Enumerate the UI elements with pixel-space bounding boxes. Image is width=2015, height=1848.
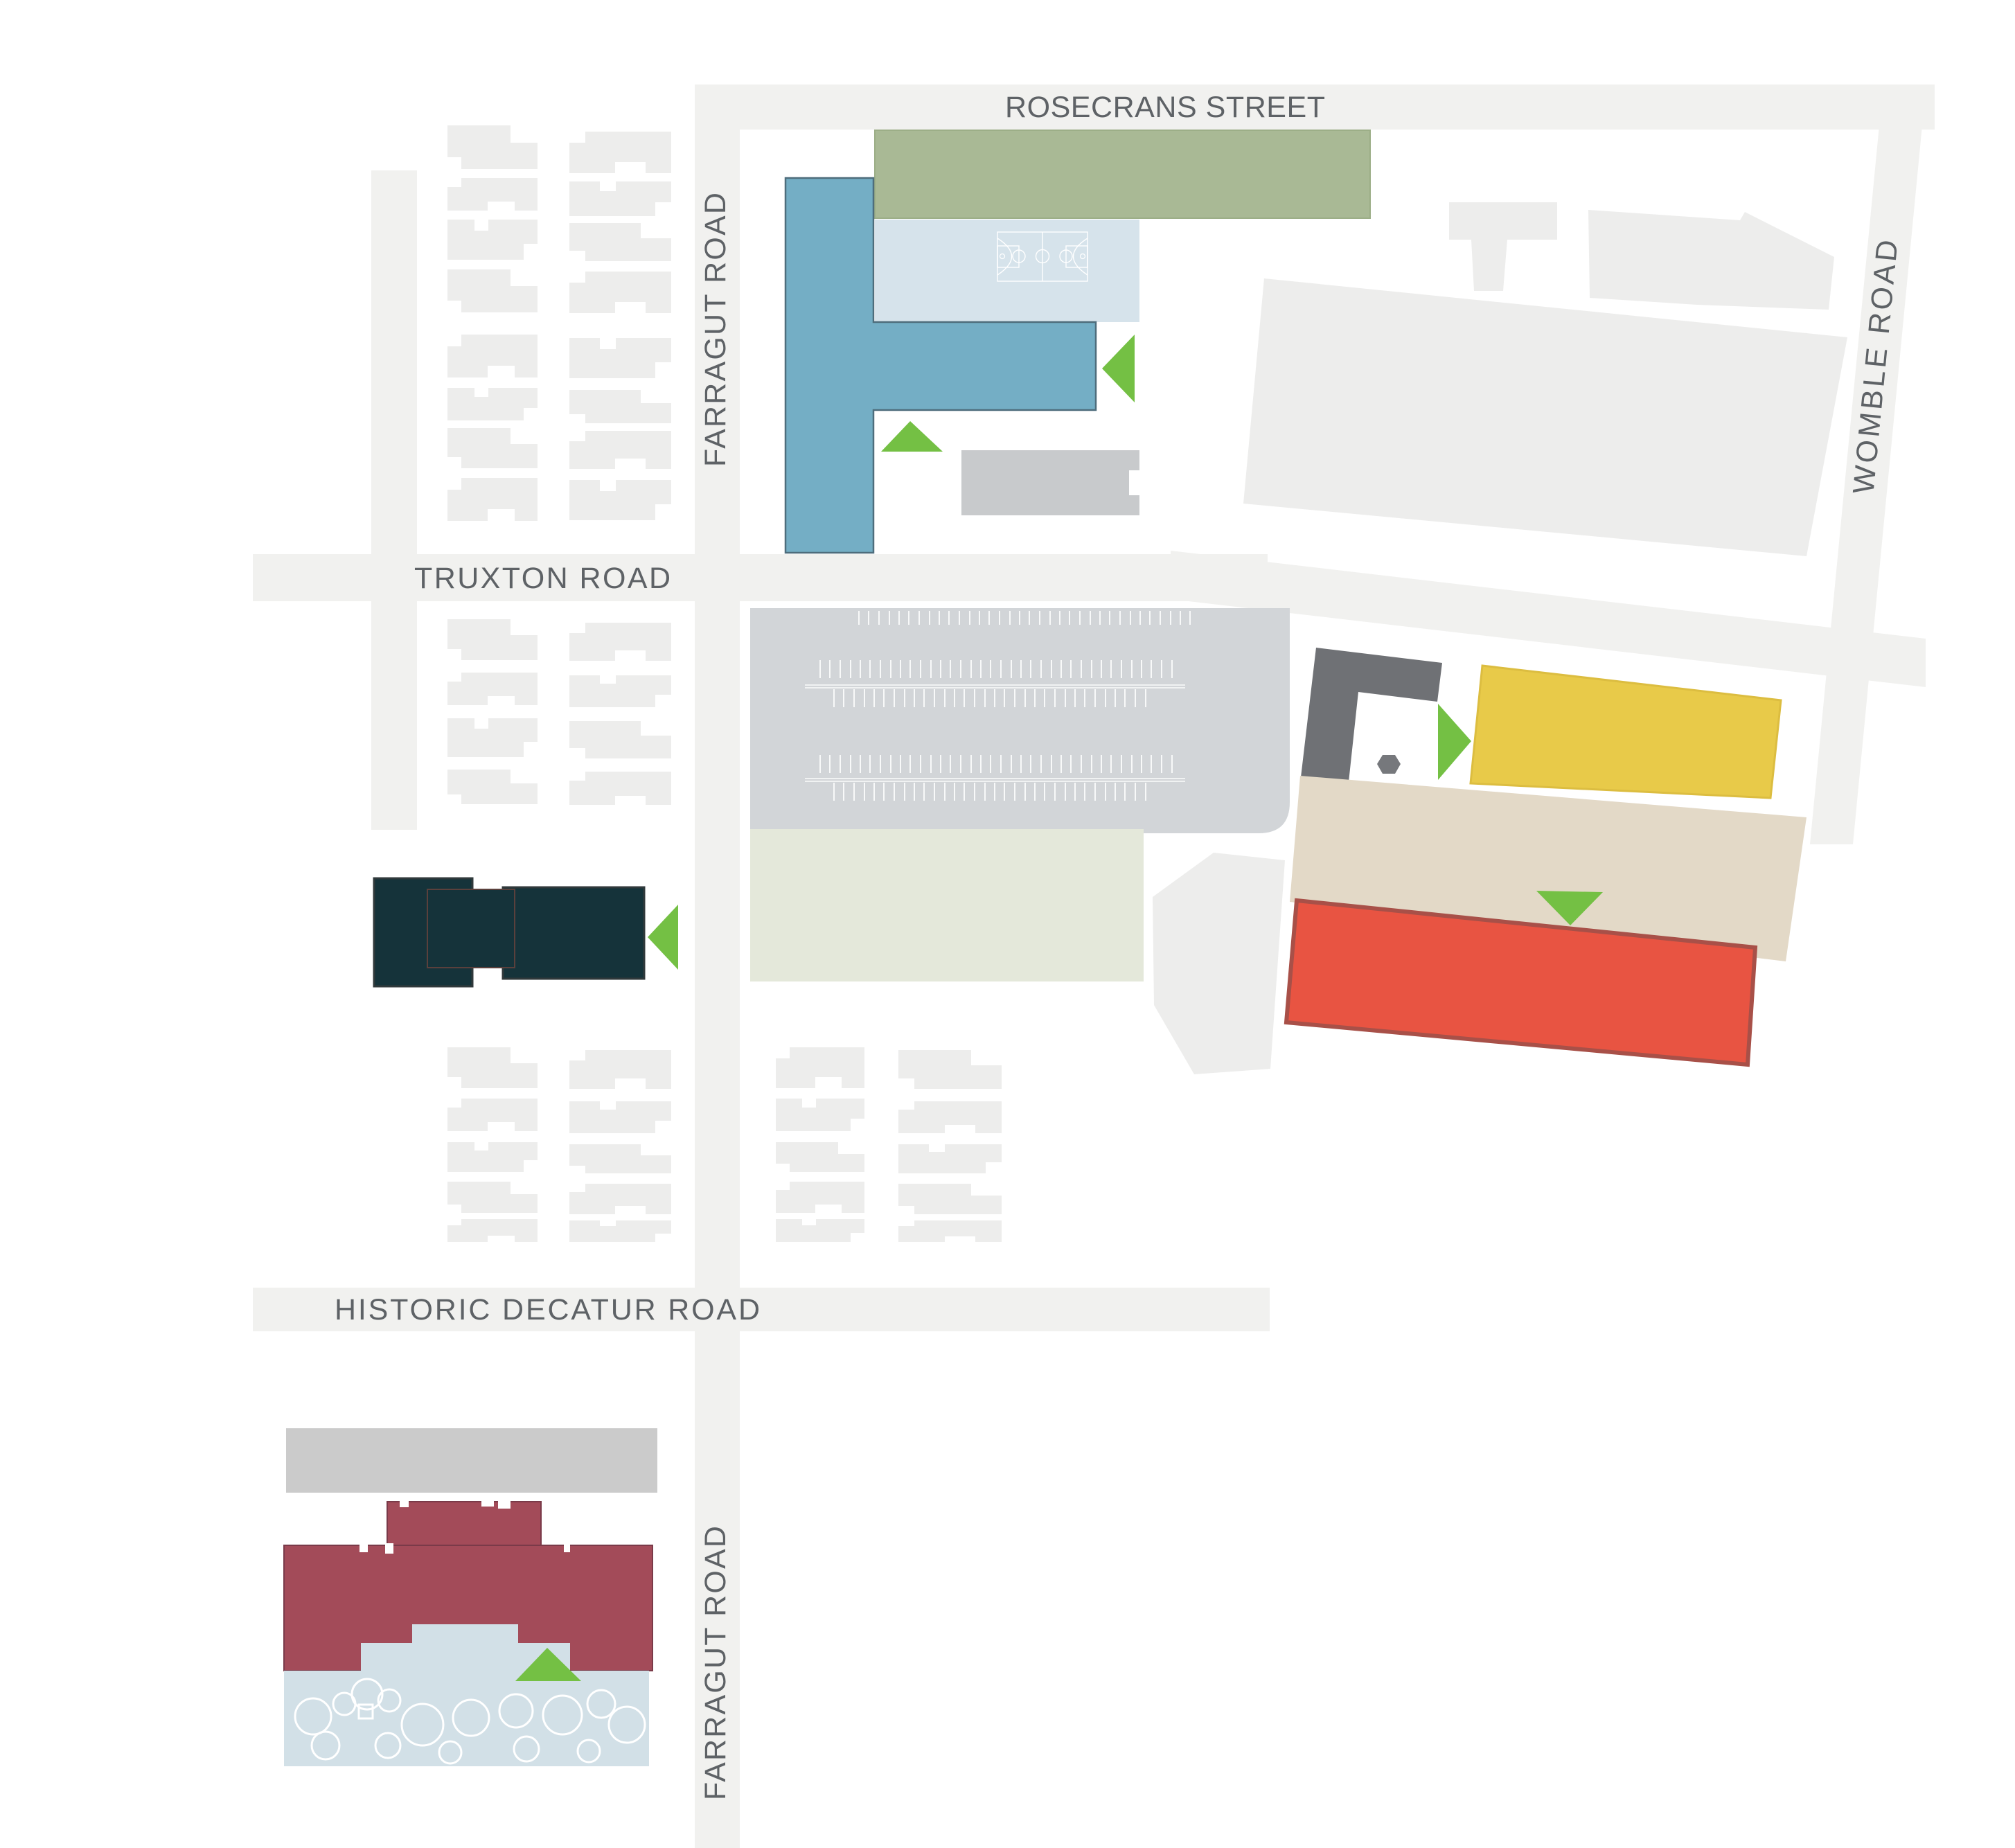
svg-text:FARRAGUT ROAD: FARRAGUT ROAD	[699, 191, 732, 467]
svg-text:TRUXTON ROAD: TRUXTON ROAD	[414, 562, 672, 595]
svg-text:HISTORIC DECATUR ROAD: HISTORIC DECATUR ROAD	[335, 1293, 761, 1326]
svg-text:FARRAGUT ROAD: FARRAGUT ROAD	[699, 1525, 732, 1800]
svg-text:ROSECRANS STREET: ROSECRANS STREET	[1005, 91, 1326, 124]
